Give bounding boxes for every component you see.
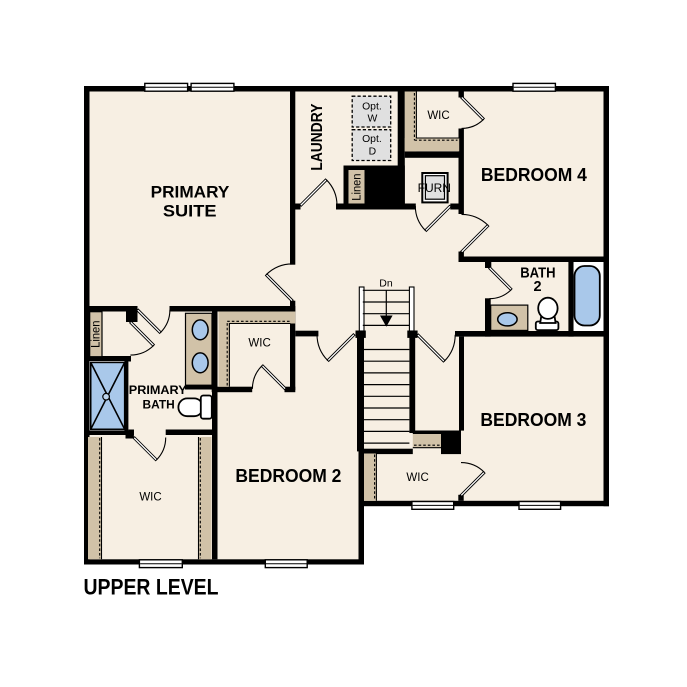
svg-text:WIC: WIC (427, 110, 449, 122)
svg-text:Opt.: Opt. (362, 134, 382, 145)
svg-text:Linen: Linen (90, 321, 102, 348)
svg-text:Dn: Dn (379, 278, 393, 290)
svg-text:BEDROOM 2: BEDROOM 2 (235, 466, 341, 486)
svg-text:FURN: FURN (418, 181, 451, 195)
svg-text:PRIMARY: PRIMARY (151, 183, 230, 201)
svg-text:BEDROOM 4: BEDROOM 4 (481, 165, 587, 185)
svg-text:2: 2 (533, 279, 541, 295)
svg-text:PRIMARY: PRIMARY (129, 385, 187, 397)
svg-text:WIC: WIC (406, 472, 428, 484)
svg-text:D: D (369, 147, 377, 158)
svg-text:LAUNDRY: LAUNDRY (309, 103, 326, 170)
svg-text:WIC: WIC (248, 338, 270, 350)
svg-text:BATH: BATH (143, 400, 175, 412)
svg-text:SUITE: SUITE (163, 202, 217, 220)
svg-text:WIC: WIC (139, 491, 161, 503)
svg-text:W: W (367, 113, 377, 124)
svg-text:BEDROOM 3: BEDROOM 3 (480, 410, 586, 430)
svg-text:Linen: Linen (351, 174, 363, 201)
svg-text:UPPER LEVEL: UPPER LEVEL (84, 575, 219, 600)
svg-text:Opt.: Opt. (362, 102, 382, 113)
